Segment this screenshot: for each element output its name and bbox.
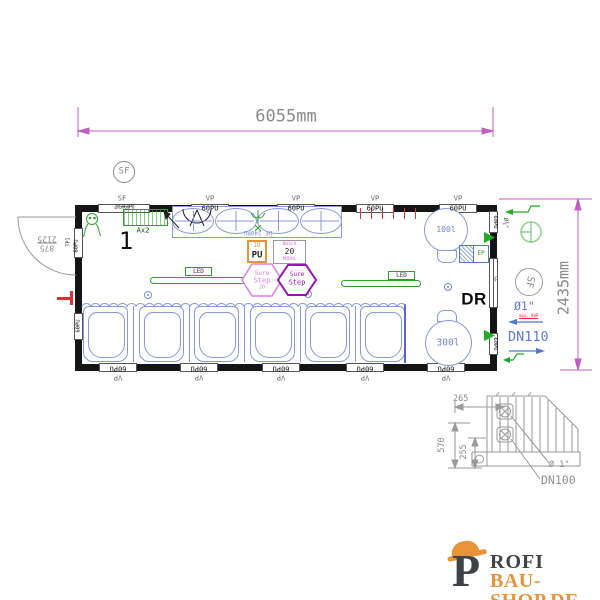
bottom-vp-label: VP <box>361 373 369 380</box>
heater-unit <box>123 209 168 226</box>
cubicle-end-wall <box>404 304 406 363</box>
overall-height-dimension: 2435mm <box>557 261 572 315</box>
floor-drain <box>444 283 452 291</box>
cubicle-tray <box>88 312 125 358</box>
logo-name: ROFI <box>490 552 544 572</box>
door-clearance-value: 2125 <box>37 235 56 244</box>
urinal-model-label: ÜF 240RU <box>244 229 273 235</box>
red-tick <box>360 208 361 219</box>
drain-arrow-green <box>503 354 524 363</box>
bottom-pu-label: 60PU <box>357 364 374 371</box>
right-window-mullion <box>493 259 494 307</box>
cubicle-partition <box>189 306 190 362</box>
hex-purple-line2: Step <box>289 280 306 287</box>
hex-pink-line3: 20 <box>259 286 265 291</box>
floor-plan-canvas: 6055mm 2435mm 875 2125 SF SF SF 2mSH60PU… <box>0 0 600 600</box>
top-pu-label: 60PU <box>288 205 305 212</box>
bottom-vp-label: VP <box>195 373 203 380</box>
sf-circle-right-label: SF <box>523 275 535 289</box>
dr-label: DR <box>461 291 487 308</box>
cubicle-tray <box>365 312 402 358</box>
boiler-100l-base <box>437 250 457 263</box>
red-tick <box>404 208 405 219</box>
bottom-pu-label: 60PU <box>273 364 290 371</box>
hex-pink-line2: Step <box>254 277 271 284</box>
toilet-cubicle <box>139 306 184 362</box>
logo-initial: P <box>452 548 480 594</box>
door-dimension-label: 875 2125 <box>37 235 56 252</box>
left-tp1-label: TP1 <box>67 237 72 246</box>
led-bar-right <box>341 280 421 287</box>
left-pu-bottom-label: 60PU <box>76 319 82 332</box>
toilet-cubicle <box>360 306 405 362</box>
top-vp-label: VP <box>292 196 300 203</box>
right-sf-label: SF <box>491 276 496 282</box>
cubicle-tray <box>144 312 181 358</box>
bottom-vp-label: VP <box>114 373 122 380</box>
overall-width-dimension: 6055mm <box>255 109 316 126</box>
inlet-arrow-green <box>505 206 540 215</box>
red-tick <box>415 208 416 219</box>
top-sf-label: SF <box>118 196 126 203</box>
cubicle-partition <box>300 306 301 362</box>
cubicle-partition <box>244 306 245 362</box>
drain-dot <box>447 286 449 288</box>
detail-dim-265: 265 <box>453 395 468 404</box>
right-pu-top-label: 60PU <box>491 215 497 228</box>
water-tap-symbol-stem <box>57 297 72 300</box>
profi-bau-shop-logo[interactable]: P ROFI BAU-SHOP.DE <box>444 538 596 598</box>
floor-drain <box>144 291 152 299</box>
top-panel-label: 2mSH60PU <box>114 206 134 211</box>
detail-drain-label: DN100 <box>541 475 576 487</box>
electrical-panel-hatch <box>460 246 474 262</box>
green-tap-circle <box>520 221 541 243</box>
bosch-box-line3: MODUL <box>283 257 297 262</box>
top-pu-label: 60PU <box>202 205 219 212</box>
drain-dot <box>307 293 309 295</box>
inlet-size-label: Ø¾" <box>502 218 508 229</box>
door-width-value: 875 <box>37 244 56 252</box>
bottom-pu-label: 60PU <box>438 364 455 371</box>
top-vp-label: VP <box>371 196 379 203</box>
sf-circle-top-label: SF <box>119 168 130 177</box>
bottom-pu-label: 60PU <box>110 364 127 371</box>
toilet-cubicle <box>83 306 128 362</box>
water-arrow-blue <box>508 319 543 325</box>
top-vp-label: VP <box>454 196 462 203</box>
detail-dim-570: 570 <box>438 437 447 452</box>
water-size-label: Ø1" <box>514 301 535 313</box>
right-window <box>489 258 498 308</box>
bottom-pu-label: 60PU <box>191 364 208 371</box>
floor-drain <box>304 290 312 298</box>
red-tick <box>393 208 394 219</box>
cubicle-tray <box>199 312 236 358</box>
urinal-bowl <box>300 208 342 234</box>
cubicle-tray <box>255 312 292 358</box>
led-label-left: LED <box>193 269 204 275</box>
toilet-cubicle <box>305 306 350 362</box>
drain-arrow-blue <box>509 348 545 354</box>
boiler-300l-label: 300l <box>437 338 460 348</box>
boiler-100l-label: 100l <box>436 226 455 234</box>
drain-size-label: DN110 <box>508 331 549 345</box>
toilet-cubicle <box>194 306 239 362</box>
bosch-box-line2: 20 <box>285 248 295 256</box>
detail-dim-255: 255 <box>460 444 469 459</box>
heater-label: Ax2 <box>137 228 150 235</box>
top-vp-label: VP <box>206 196 214 203</box>
hex-purple-line1: Sure <box>290 272 304 278</box>
led-label-right: LED <box>396 273 407 279</box>
drawing-overlay <box>0 0 600 600</box>
washbasin-icon <box>83 214 101 238</box>
bottom-vp-label: VP <box>277 373 285 380</box>
ep-label: EP <box>477 251 484 257</box>
drain-dot <box>147 294 149 296</box>
pu-box-line2: PU <box>252 252 263 261</box>
toilet-cubicle <box>250 306 295 362</box>
logo-domain: BAU-SHOP.DE <box>490 571 596 600</box>
cubicle-partition <box>133 306 134 362</box>
pu-box-line1: ID <box>253 243 260 249</box>
left-pu-top-label: 60PU <box>74 239 80 252</box>
bottom-vp-label: VP <box>442 373 450 380</box>
room-number: 1 <box>119 229 133 253</box>
top-pu-label: 60PU <box>450 205 467 212</box>
top-pu-label: 60PU <box>367 205 384 212</box>
cubicle-tray <box>310 312 347 358</box>
right-pu-bottom-label: 60PU <box>491 337 497 350</box>
water-note-label: max. 80P <box>519 314 538 319</box>
cubicle-partition <box>355 306 356 362</box>
detail-pipe-label: Ø 1" <box>549 461 569 470</box>
